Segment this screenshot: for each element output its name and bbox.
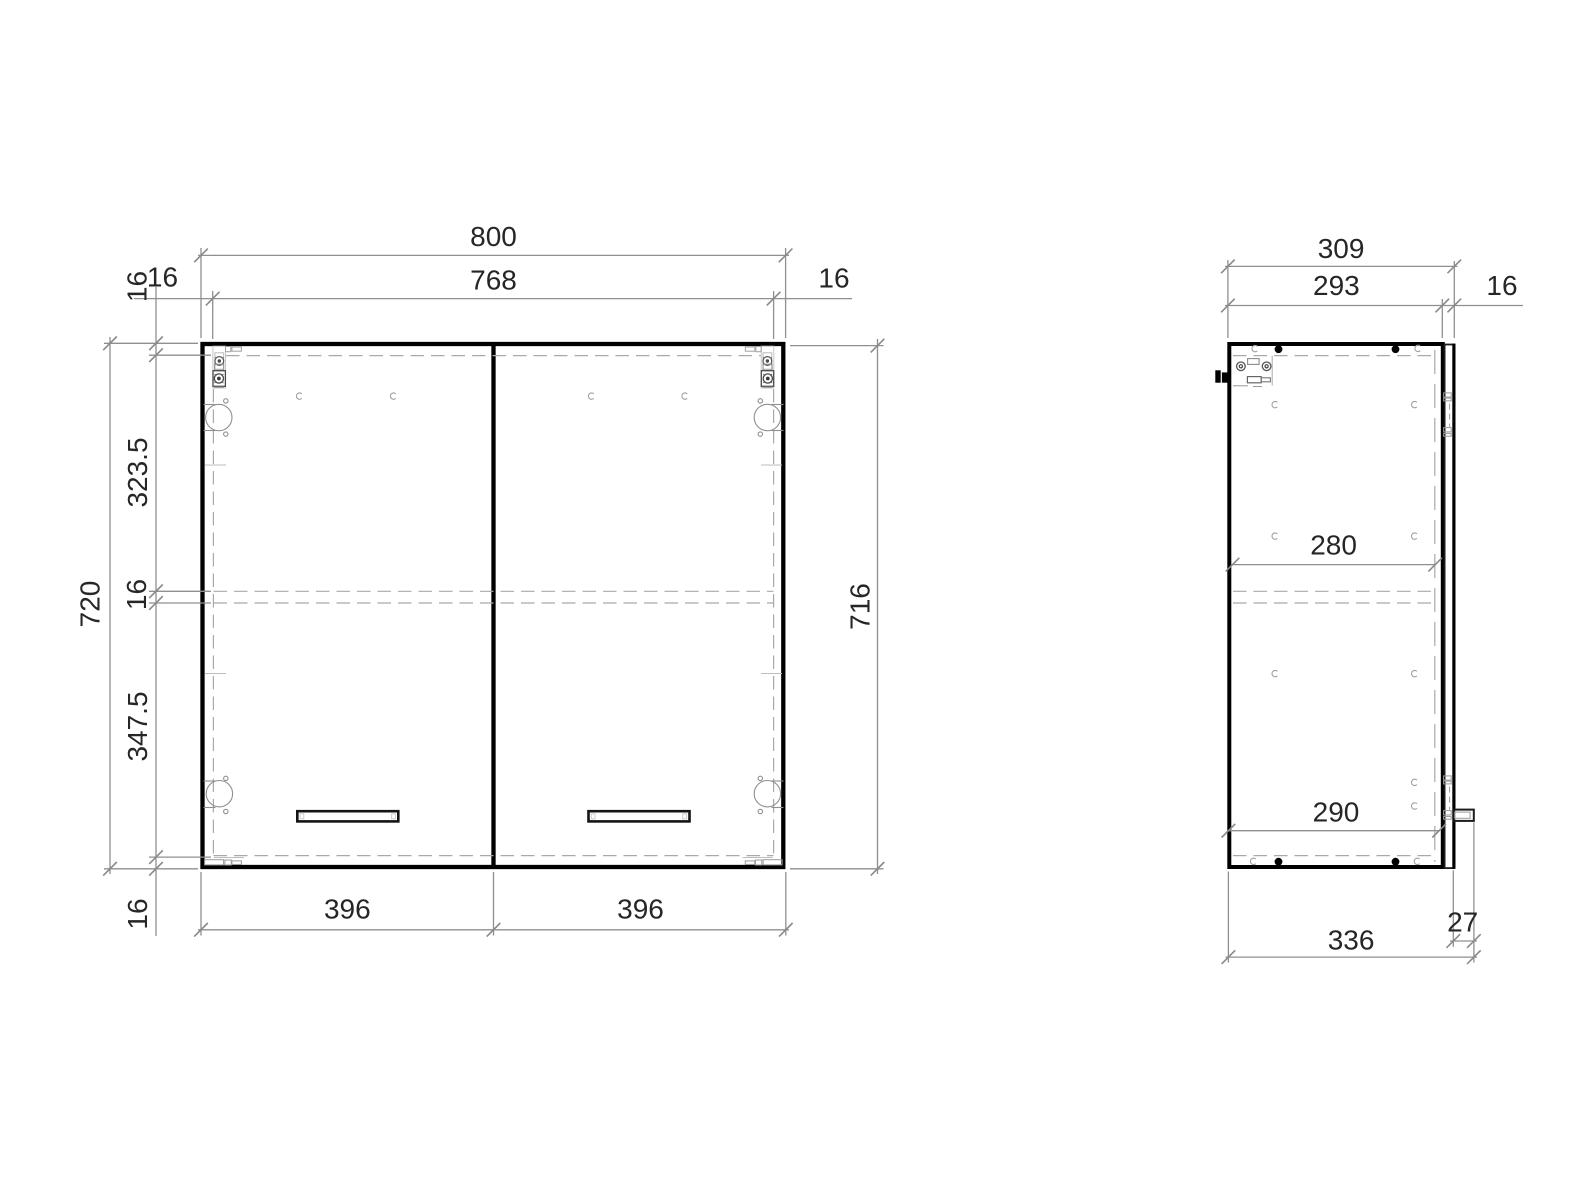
- svg-text:16: 16: [121, 579, 152, 610]
- svg-text:716: 716: [844, 583, 875, 630]
- svg-text:290: 290: [1313, 796, 1360, 827]
- svg-text:280: 280: [1310, 530, 1357, 561]
- svg-text:768: 768: [470, 264, 517, 295]
- svg-text:396: 396: [324, 894, 371, 925]
- svg-text:16: 16: [122, 271, 153, 302]
- svg-text:336: 336: [1328, 925, 1375, 956]
- svg-text:347.5: 347.5: [122, 691, 153, 761]
- svg-text:16: 16: [122, 898, 153, 929]
- svg-text:27: 27: [1447, 907, 1478, 938]
- svg-text:800: 800: [470, 221, 517, 252]
- svg-text:323.5: 323.5: [122, 437, 153, 507]
- svg-text:16: 16: [1486, 270, 1517, 301]
- svg-text:720: 720: [75, 581, 106, 628]
- svg-text:16: 16: [818, 263, 849, 294]
- svg-text:396: 396: [617, 894, 664, 925]
- svg-text:309: 309: [1318, 233, 1365, 264]
- svg-text:293: 293: [1313, 270, 1360, 301]
